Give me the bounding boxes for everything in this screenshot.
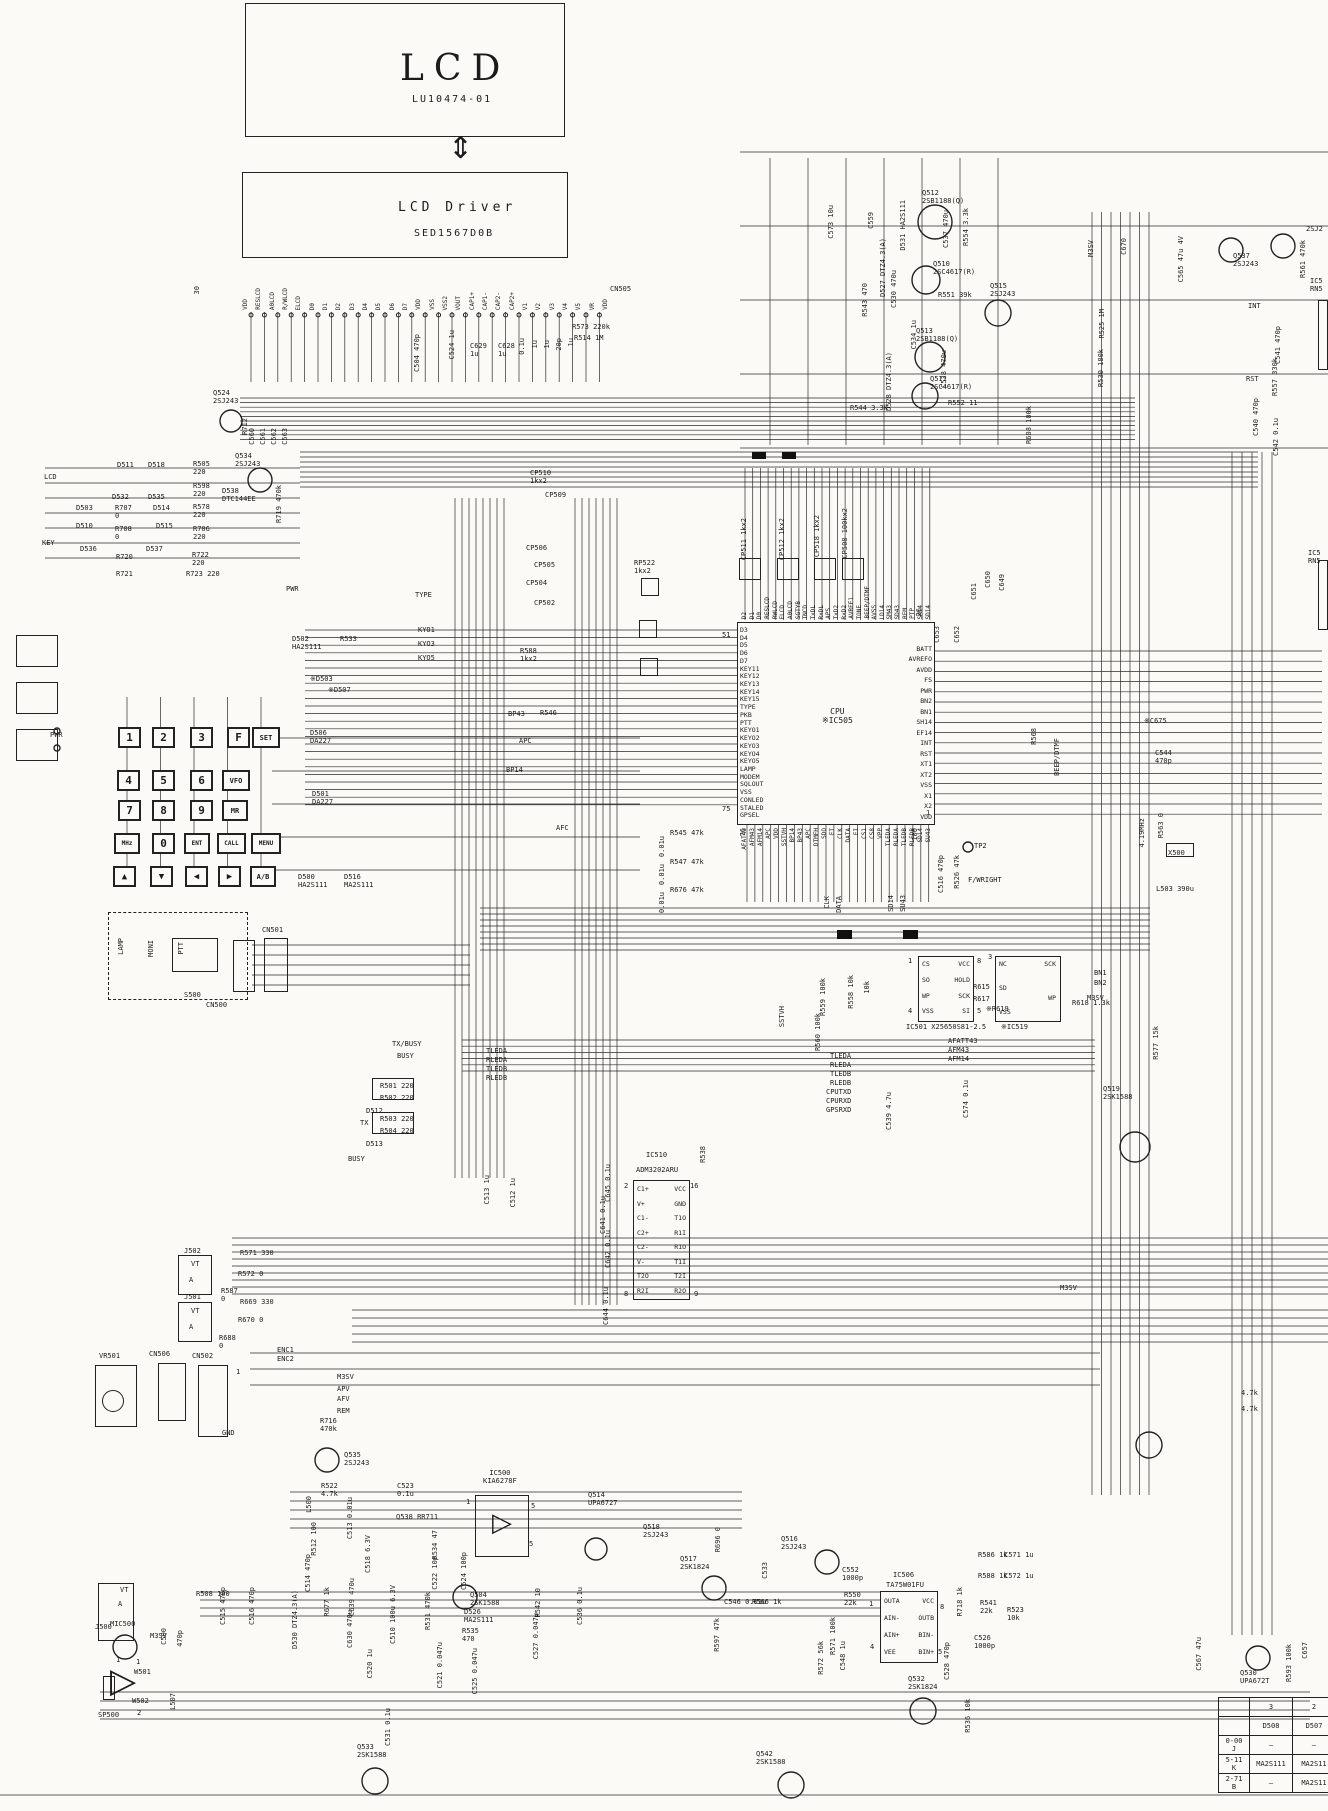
- part-label: ※D507: [328, 687, 351, 695]
- pin-label: AIN+: [884, 1632, 908, 1639]
- part-label: TP2: [974, 843, 987, 851]
- pin-label: CS1: [862, 828, 868, 839]
- pin-label: V2: [536, 303, 542, 310]
- keypad-key: MR: [222, 800, 248, 821]
- table-col-3: 3: [1250, 1698, 1293, 1717]
- part-label: AFM14: [948, 1056, 969, 1064]
- part-label: C574 0.1u: [963, 1080, 971, 1118]
- part-label: 20p: [556, 338, 564, 351]
- part-label: KYO3: [418, 641, 435, 649]
- part-label: W501: [134, 1669, 151, 1677]
- part-label: KYO5: [418, 655, 435, 663]
- part-label: Q516 2SJ243: [781, 1536, 806, 1552]
- part-label: RST: [1246, 376, 1259, 384]
- pin-label: SH14: [916, 719, 932, 726]
- pin-label: TxD2: [834, 605, 840, 619]
- part-label: R533: [340, 636, 357, 644]
- part-label: CPUTXD: [826, 1089, 851, 1097]
- pin-label: SDO: [822, 828, 828, 839]
- pin-label: TNCD: [803, 605, 809, 619]
- part-label: MONI: [148, 940, 156, 957]
- part-label: 1: [116, 1657, 120, 1665]
- part-label: Q504 2SK1588: [470, 1592, 500, 1608]
- part-label: 1u: [544, 340, 552, 348]
- part-label: R523 10k: [1007, 1607, 1024, 1623]
- part-label: C528 470p: [944, 1642, 952, 1680]
- ic506-pins-left: OUTAAIN-AIN+VEE: [884, 1598, 908, 1656]
- part-label: C541 470p: [1275, 326, 1283, 364]
- pin-label: V1: [523, 303, 529, 310]
- part-label: C520 1u: [367, 1649, 375, 1679]
- part-label: C533: [762, 1562, 770, 1579]
- part-label: IC5 RN5: [1308, 550, 1321, 566]
- part-label: IC5 RN5: [1310, 278, 1323, 294]
- pin-label: CS8: [870, 828, 876, 839]
- pin-label: SI: [962, 1008, 970, 1015]
- pin-label: WP: [1048, 995, 1056, 1002]
- pin-label: APC: [766, 828, 772, 839]
- pin-label: RWLCD: [773, 601, 779, 619]
- pin-label: R2O: [674, 1288, 686, 1295]
- part-label: C548 1u: [840, 1641, 848, 1671]
- pin-label: APC: [806, 828, 812, 839]
- part-label: APV: [337, 1386, 350, 1394]
- part-label: R545 47k: [670, 830, 704, 838]
- part-label: R522 4.7k: [321, 1483, 338, 1499]
- part-label: C539 4.7u: [886, 1092, 894, 1130]
- part-label: ※R619: [986, 1006, 1009, 1014]
- part-label: CP510 1kx2: [530, 470, 551, 486]
- vr501-shaft: [102, 1390, 124, 1412]
- pin-label: BIN-: [918, 1632, 934, 1639]
- part-label: 0.01u: [659, 836, 667, 857]
- keypad-key: 8: [152, 800, 175, 821]
- part-label: D526 MA2S111: [464, 1609, 494, 1625]
- pin-label: KEYO2: [740, 735, 795, 742]
- part-label: Q511 2SC4617(R): [930, 376, 972, 392]
- part-label: R587 0: [221, 1288, 238, 1304]
- pin-label: SCK: [958, 993, 970, 1000]
- part-label: R505 220: [193, 461, 210, 477]
- keypad-key: CALL: [217, 833, 246, 854]
- part-label: 1: [466, 1499, 470, 1507]
- part-label: C649: [999, 574, 1007, 591]
- pin-label: SD14: [926, 605, 932, 619]
- opamp-triangle-icon: ▷: [492, 1510, 512, 1536]
- part-label: SD14: [888, 895, 896, 912]
- part-label: CPURXD: [826, 1098, 851, 1106]
- part-label: R588 1kx2: [520, 648, 537, 664]
- part-label: 4: [908, 1008, 912, 1016]
- part-label: C650: [985, 571, 993, 588]
- resistor-network: [640, 658, 658, 676]
- part-label: 1: [869, 1601, 873, 1609]
- pin-label: BN1: [920, 709, 932, 716]
- part-label: 10k: [864, 981, 872, 994]
- pin-label: T1I: [674, 1259, 686, 1266]
- resistor-network: [16, 635, 58, 667]
- part-label: C670: [1121, 238, 1129, 255]
- pin-label: CAP1-: [483, 292, 489, 310]
- ic501-part: X25650S81-2.5: [931, 1023, 986, 1031]
- part-label: PWR: [50, 732, 63, 740]
- part-label: AFC: [556, 825, 569, 833]
- pin-label: CLK: [838, 828, 844, 839]
- part-label: R558 10k: [848, 975, 856, 1009]
- resistor-network: [639, 620, 657, 638]
- part-label: CN501: [262, 927, 283, 935]
- part-label: BUSY: [397, 1053, 414, 1061]
- part-label: 8: [940, 1604, 944, 1612]
- pin-label: NC: [999, 961, 1021, 968]
- part-label: CP502: [534, 600, 555, 608]
- part-label: CP508 100kx2: [842, 508, 850, 559]
- part-label: Q532 2SK1824: [908, 1676, 938, 1692]
- part-label: R501 220: [380, 1083, 414, 1091]
- pin-label: XT2: [920, 772, 932, 779]
- part-label: VT: [191, 1308, 199, 1316]
- ic506-pins-right: VCCOUTBBIN-BIN+: [908, 1598, 934, 1656]
- part-label: C531 0.1u: [385, 1708, 393, 1746]
- pin-label: D1: [750, 612, 756, 619]
- pin-label: KEY13: [740, 681, 795, 688]
- part-label: 1u: [532, 340, 540, 348]
- part-label: R504 220: [380, 1128, 414, 1136]
- part-label: C526 1000p: [974, 1635, 995, 1651]
- pin-label: LD14: [880, 605, 886, 619]
- part-label: ENC2: [277, 1356, 294, 1364]
- lcd-driver-block: [242, 172, 568, 258]
- part-label: D536: [80, 546, 97, 554]
- pin-label: D1: [323, 303, 329, 310]
- keypad-key: ENT: [184, 833, 210, 854]
- part-label: R618 1.3k: [1072, 1000, 1110, 1008]
- part-label: C561: [260, 428, 268, 445]
- pin-label: CONLED: [740, 797, 795, 804]
- lcd-driver-title: LCD Driver: [398, 200, 516, 215]
- part-label: C542 0.1u: [1273, 418, 1281, 456]
- pin-label: SCK: [1044, 961, 1056, 968]
- pin-label: D5: [740, 642, 795, 649]
- part-label: R563 0: [1158, 813, 1166, 838]
- pin-label: VCC: [674, 1186, 686, 1193]
- part-label: C544 470p: [1155, 750, 1172, 766]
- part-label: C559: [868, 212, 876, 229]
- part-label: F/WRIGHT: [968, 877, 1002, 885]
- part-label: D502 HA2S111: [292, 636, 322, 652]
- part-label: Q517 2SK1824: [680, 1556, 710, 1572]
- pin-label: VDD: [774, 828, 780, 839]
- pin-label: EF14: [916, 730, 932, 737]
- pin-label: RESLCD: [765, 597, 771, 619]
- part-label: CN500: [206, 1002, 227, 1010]
- part-label: R503 220: [380, 1116, 414, 1124]
- part-label: ※D503: [310, 676, 333, 684]
- pin-label: V4: [563, 303, 569, 310]
- pin-label: T2I: [674, 1273, 686, 1280]
- speaker-cone-icon: ◁: [110, 1664, 136, 1698]
- part-label: R718 1k: [957, 1587, 965, 1617]
- keypad-key: A/B: [250, 866, 276, 887]
- pin-label: D4: [740, 635, 795, 642]
- pin-label: D2: [742, 612, 748, 619]
- part-label: 9: [694, 1291, 698, 1299]
- pin-label: SSTVH: [782, 828, 788, 846]
- part-label: R696 0: [715, 1527, 723, 1552]
- part-label: 0.01u: [659, 892, 667, 913]
- part-label: R546: [540, 710, 557, 718]
- part-label: BN2: [1094, 980, 1107, 988]
- pin-label: V3: [550, 303, 556, 310]
- part-label: M3SV: [150, 1633, 167, 1641]
- part-label: R559 100k: [820, 978, 828, 1016]
- pin-label: D3: [740, 627, 795, 634]
- part-label: Q524 2SJ243: [213, 390, 238, 406]
- keypad-key: 7: [118, 800, 141, 821]
- part-label: 1: [236, 1369, 240, 1377]
- pin-label: KEY12: [740, 673, 795, 680]
- cn505-pin-row: VDDRESLCDA0LCDR/WLCDELCDD0D1D2D3D4D5D6D7…: [243, 260, 609, 310]
- pin-label: VDD: [243, 299, 249, 310]
- part-label: C536 0.1u: [577, 1587, 585, 1625]
- part-label: R670 0: [238, 1317, 263, 1325]
- part-label: D532: [112, 494, 129, 502]
- part-label: C565 47u 4V: [1178, 236, 1186, 282]
- part-label: R577 15k: [1153, 1026, 1161, 1060]
- pin-label: PKB: [740, 712, 795, 719]
- part-label: CP505: [534, 562, 555, 570]
- part-label: R560 100k: [815, 1013, 823, 1051]
- part-label: C644 0.1u: [603, 1287, 611, 1325]
- part-label: C514 470p: [305, 1554, 313, 1592]
- part-label: Q519 2SK1588: [1103, 1086, 1133, 1102]
- pin-label: BATT: [916, 646, 932, 653]
- part-label: R538: [700, 1146, 708, 1163]
- pin-label: CAP2-: [496, 292, 502, 310]
- part-label: R526 47k: [954, 855, 962, 889]
- part-label: D518: [148, 462, 165, 470]
- pin-label: MODEM: [740, 774, 795, 781]
- ic519-ref: ※IC519: [1001, 1024, 1028, 1032]
- pin-label: TONE: [857, 605, 863, 619]
- pin-label: RST: [920, 751, 932, 758]
- lcd-title: LCD: [400, 48, 510, 89]
- pin-label: AVREF1: [849, 597, 855, 619]
- part-label: C521 0.047u: [437, 1642, 445, 1688]
- part-label: R598 220: [193, 483, 210, 499]
- pin-label: D4: [363, 303, 369, 310]
- part-label: R544 3.3k: [850, 405, 888, 413]
- part-label: 470p: [177, 1630, 185, 1647]
- pin-label: GND: [674, 1201, 686, 1208]
- table-row-label: 2-71 B: [1219, 1774, 1250, 1793]
- cutoff-ic-box: [1318, 560, 1328, 630]
- part-label: 2: [137, 1710, 141, 1718]
- ic501-ref: IC501: [906, 1023, 927, 1031]
- pin-label: EI: [854, 828, 860, 835]
- part-label: C567 47u: [1196, 1637, 1204, 1671]
- pin-label: TYPE: [740, 704, 795, 711]
- part-label: VT: [120, 1587, 128, 1595]
- pin-label: V5: [576, 303, 582, 310]
- pin-label: PTT: [740, 720, 795, 727]
- pin-label: DTMFH: [814, 828, 820, 846]
- part-label: 5: [531, 1503, 535, 1511]
- part-label: D503: [76, 505, 93, 513]
- pin-label: R/WLCD: [283, 288, 289, 310]
- pin-label: BIN+: [918, 1649, 934, 1656]
- part-label: W502: [132, 1698, 149, 1706]
- part-label: R721: [116, 571, 133, 579]
- part-label: D511: [117, 462, 134, 470]
- pin-label: RxD2: [842, 605, 848, 619]
- part-label: A: [189, 1324, 193, 1332]
- cpu-pins-right: BATTAVREFOAVDDFSPWRBN2BN1SH14EF14INTRSTX…: [848, 646, 932, 820]
- cn505-label: CN505: [610, 286, 631, 294]
- part-label: R551 39k: [938, 292, 972, 300]
- part-label: RLEDA: [486, 1057, 507, 1065]
- part-label: C628 1u: [498, 343, 515, 359]
- part-label: C540 470p: [1253, 398, 1261, 436]
- pin-label: D2: [336, 303, 342, 310]
- keypad-key: F: [227, 727, 250, 748]
- part-label: D513: [366, 1141, 383, 1149]
- part-label: 2SJ2: [1306, 226, 1323, 234]
- part-label: C523 0.1u: [397, 1483, 414, 1499]
- part-label: Q534 2SJ243: [235, 453, 260, 469]
- part-label: R547 47k: [670, 859, 704, 867]
- pin-label: DATA: [846, 828, 852, 842]
- lcd-part-number: LU10474-01: [412, 94, 492, 105]
- pin-label: D5: [376, 303, 382, 310]
- part-label: R676 47k: [670, 887, 704, 895]
- part-label: RLEDA: [830, 1062, 851, 1070]
- pin-label: REM: [903, 608, 909, 619]
- pin-label: AVREFO: [909, 656, 932, 663]
- pin-label: ELCD: [780, 605, 786, 619]
- part-label: D516 MA2S111: [344, 874, 374, 890]
- part-label: CP511 1kx2: [741, 518, 749, 560]
- pin-label: VOUT: [456, 296, 462, 310]
- part-label: 2: [624, 1183, 628, 1191]
- part-label: C516 470p: [249, 1587, 257, 1625]
- schematic-page: LCD LU10474-01 ⇕ LCD Driver SED1567D0B 3…: [0, 0, 1328, 1811]
- pin-label: KEY11: [740, 666, 795, 673]
- part-label: 16: [690, 1183, 698, 1191]
- pin-label: KEYO3: [740, 743, 795, 750]
- pin-label: VCC: [922, 1598, 934, 1605]
- part-label: R708 0: [115, 526, 132, 542]
- part-label: CP518 1kx2: [814, 515, 822, 557]
- part-label: 4: [870, 1644, 874, 1652]
- part-label: R617: [973, 996, 990, 1004]
- cpu-pins-left: D3D4D5D6D7KEY11KEY12KEY13KEY14KEY15TYPEP…: [740, 627, 795, 819]
- pin-label: D3: [350, 303, 356, 310]
- part-label: CP504: [526, 580, 547, 588]
- keypad-key: MHz: [114, 833, 140, 854]
- part-label: GND: [222, 1430, 235, 1438]
- part-label: VT: [191, 1261, 199, 1269]
- part-label: C652: [954, 626, 962, 643]
- resistor-network: [641, 578, 659, 596]
- part-label: RP522 1kx2: [634, 560, 655, 576]
- part-label: KEY: [42, 540, 55, 548]
- part-label: APC: [519, 738, 532, 746]
- pin-label: VDD: [603, 299, 609, 310]
- part-label: C525 0.047u: [472, 1648, 480, 1694]
- table-col-2: 2: [1293, 1698, 1328, 1717]
- pin-label: VSS: [920, 782, 932, 789]
- part-label: 4.7k: [1241, 1390, 1258, 1398]
- cpu-pins-top: D2D1D0RESLCDRWLCDELCDA0LCDSGTYBTNCDTxDLR…: [742, 553, 932, 619]
- connector-cn502: [198, 1365, 228, 1437]
- part-label: ※C675: [1144, 718, 1167, 726]
- part-label: C572 1u: [1004, 1573, 1034, 1581]
- part-label: C515 470p: [220, 1587, 228, 1625]
- pin-label: FS: [924, 677, 932, 684]
- diode-table: 3 2 D508 D507 0-00 J — — 5-11 K MA2S111 …: [1218, 1697, 1328, 1793]
- pin-label: AFM43: [750, 828, 756, 846]
- pin-label: BN2: [920, 698, 932, 705]
- part-label: R543 470: [862, 283, 870, 317]
- ic506-part: TA75W01FU: [886, 1582, 924, 1590]
- pin-label: X1: [924, 793, 932, 800]
- part-label: TLEDA: [830, 1053, 851, 1061]
- cpu-corner-75: 75: [722, 806, 730, 814]
- part-label: TX/BUSY: [392, 1041, 422, 1049]
- part-label: L500: [306, 1496, 314, 1513]
- ic506-ref: IC506: [893, 1572, 914, 1580]
- part-label: C552 1000p: [842, 1567, 863, 1583]
- part-label: A: [118, 1601, 122, 1609]
- part-label: C630 470u: [347, 1610, 355, 1648]
- part-label: S500: [184, 992, 201, 1000]
- cn505-pin30: 30: [194, 286, 202, 294]
- part-label: LAMP: [118, 938, 126, 955]
- pin-label: KEYO4: [740, 751, 795, 758]
- table-d507: D507: [1293, 1717, 1328, 1736]
- part-label: TYPE: [415, 592, 432, 600]
- pin-label: OUTA: [884, 1598, 908, 1605]
- part-label: Q538 RR711: [396, 1514, 438, 1522]
- part-label: C518 6.3V: [365, 1535, 373, 1573]
- part-label: TLEDA: [486, 1048, 507, 1056]
- part-label: RLEDB: [486, 1075, 507, 1083]
- part-label: SU43: [900, 895, 908, 912]
- part-label: C537 470u: [943, 210, 951, 248]
- part-label: R608 100k: [1026, 406, 1034, 444]
- part-label: C538 470u: [941, 350, 949, 388]
- keypad-key: 0: [152, 833, 175, 854]
- part-label: C510 100u 6.3V: [390, 1585, 398, 1644]
- part-label: 5: [529, 1541, 533, 1549]
- part-label: GPSRXD: [826, 1107, 851, 1115]
- pin-label: SD14: [918, 828, 924, 842]
- part-label: TX: [360, 1120, 368, 1128]
- part-label: CP512 1kx2: [779, 518, 787, 560]
- pin-label: SQLOUT: [740, 781, 795, 788]
- part-label: R568: [1031, 728, 1039, 745]
- part-label: BP43: [508, 711, 525, 719]
- pin-label: RLEDA: [894, 828, 900, 846]
- keypad-key: ▼: [150, 866, 173, 887]
- part-label: C522 10p: [432, 1556, 440, 1590]
- pin-label: SU43: [926, 828, 932, 842]
- part-label: D531 HA2S111: [900, 200, 908, 251]
- part-label: R572 56k: [818, 1641, 826, 1675]
- pin-label: CAP1+: [470, 292, 476, 310]
- resistor-network: [16, 682, 58, 714]
